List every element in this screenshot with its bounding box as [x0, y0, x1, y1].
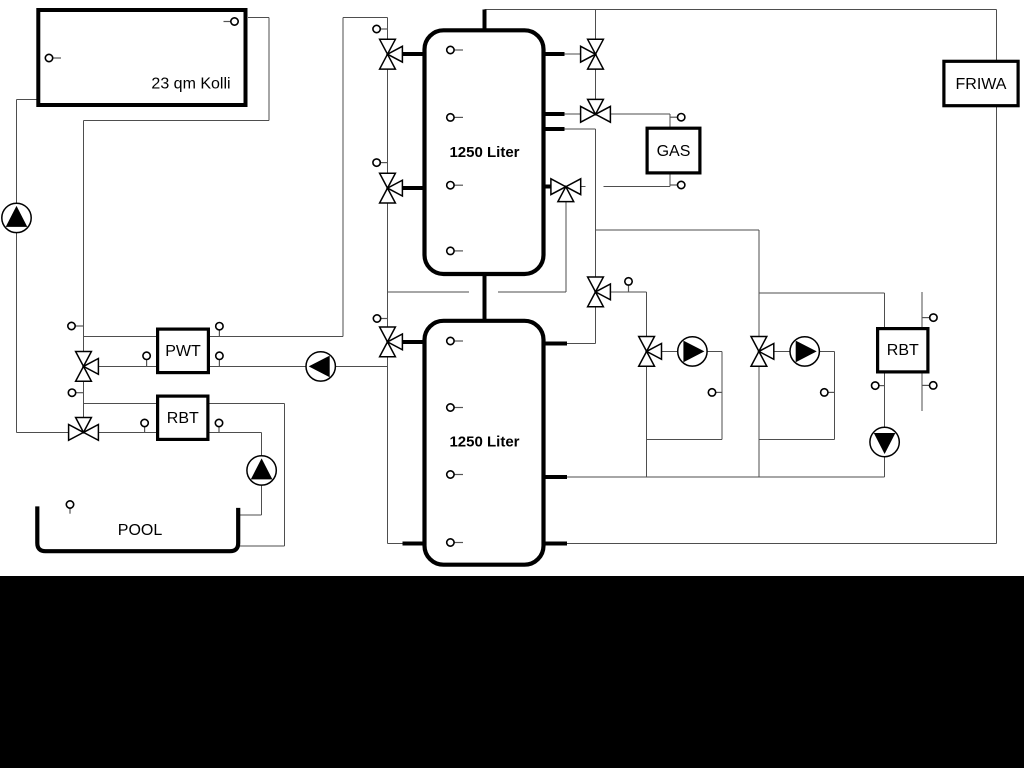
svg-text:RBT: RBT	[887, 342, 919, 359]
svg-text:23 qm Kolli: 23 qm Kolli	[151, 76, 230, 93]
svg-text:POOL: POOL	[118, 522, 163, 539]
svg-text:1250 Liter: 1250 Liter	[449, 144, 519, 161]
svg-text:GAS: GAS	[657, 143, 691, 160]
svg-text:1250 Liter: 1250 Liter	[449, 433, 519, 450]
svg-text:FRIWA: FRIWA	[956, 76, 1007, 93]
svg-text:PWT: PWT	[165, 343, 201, 360]
svg-text:RBT: RBT	[167, 410, 199, 427]
